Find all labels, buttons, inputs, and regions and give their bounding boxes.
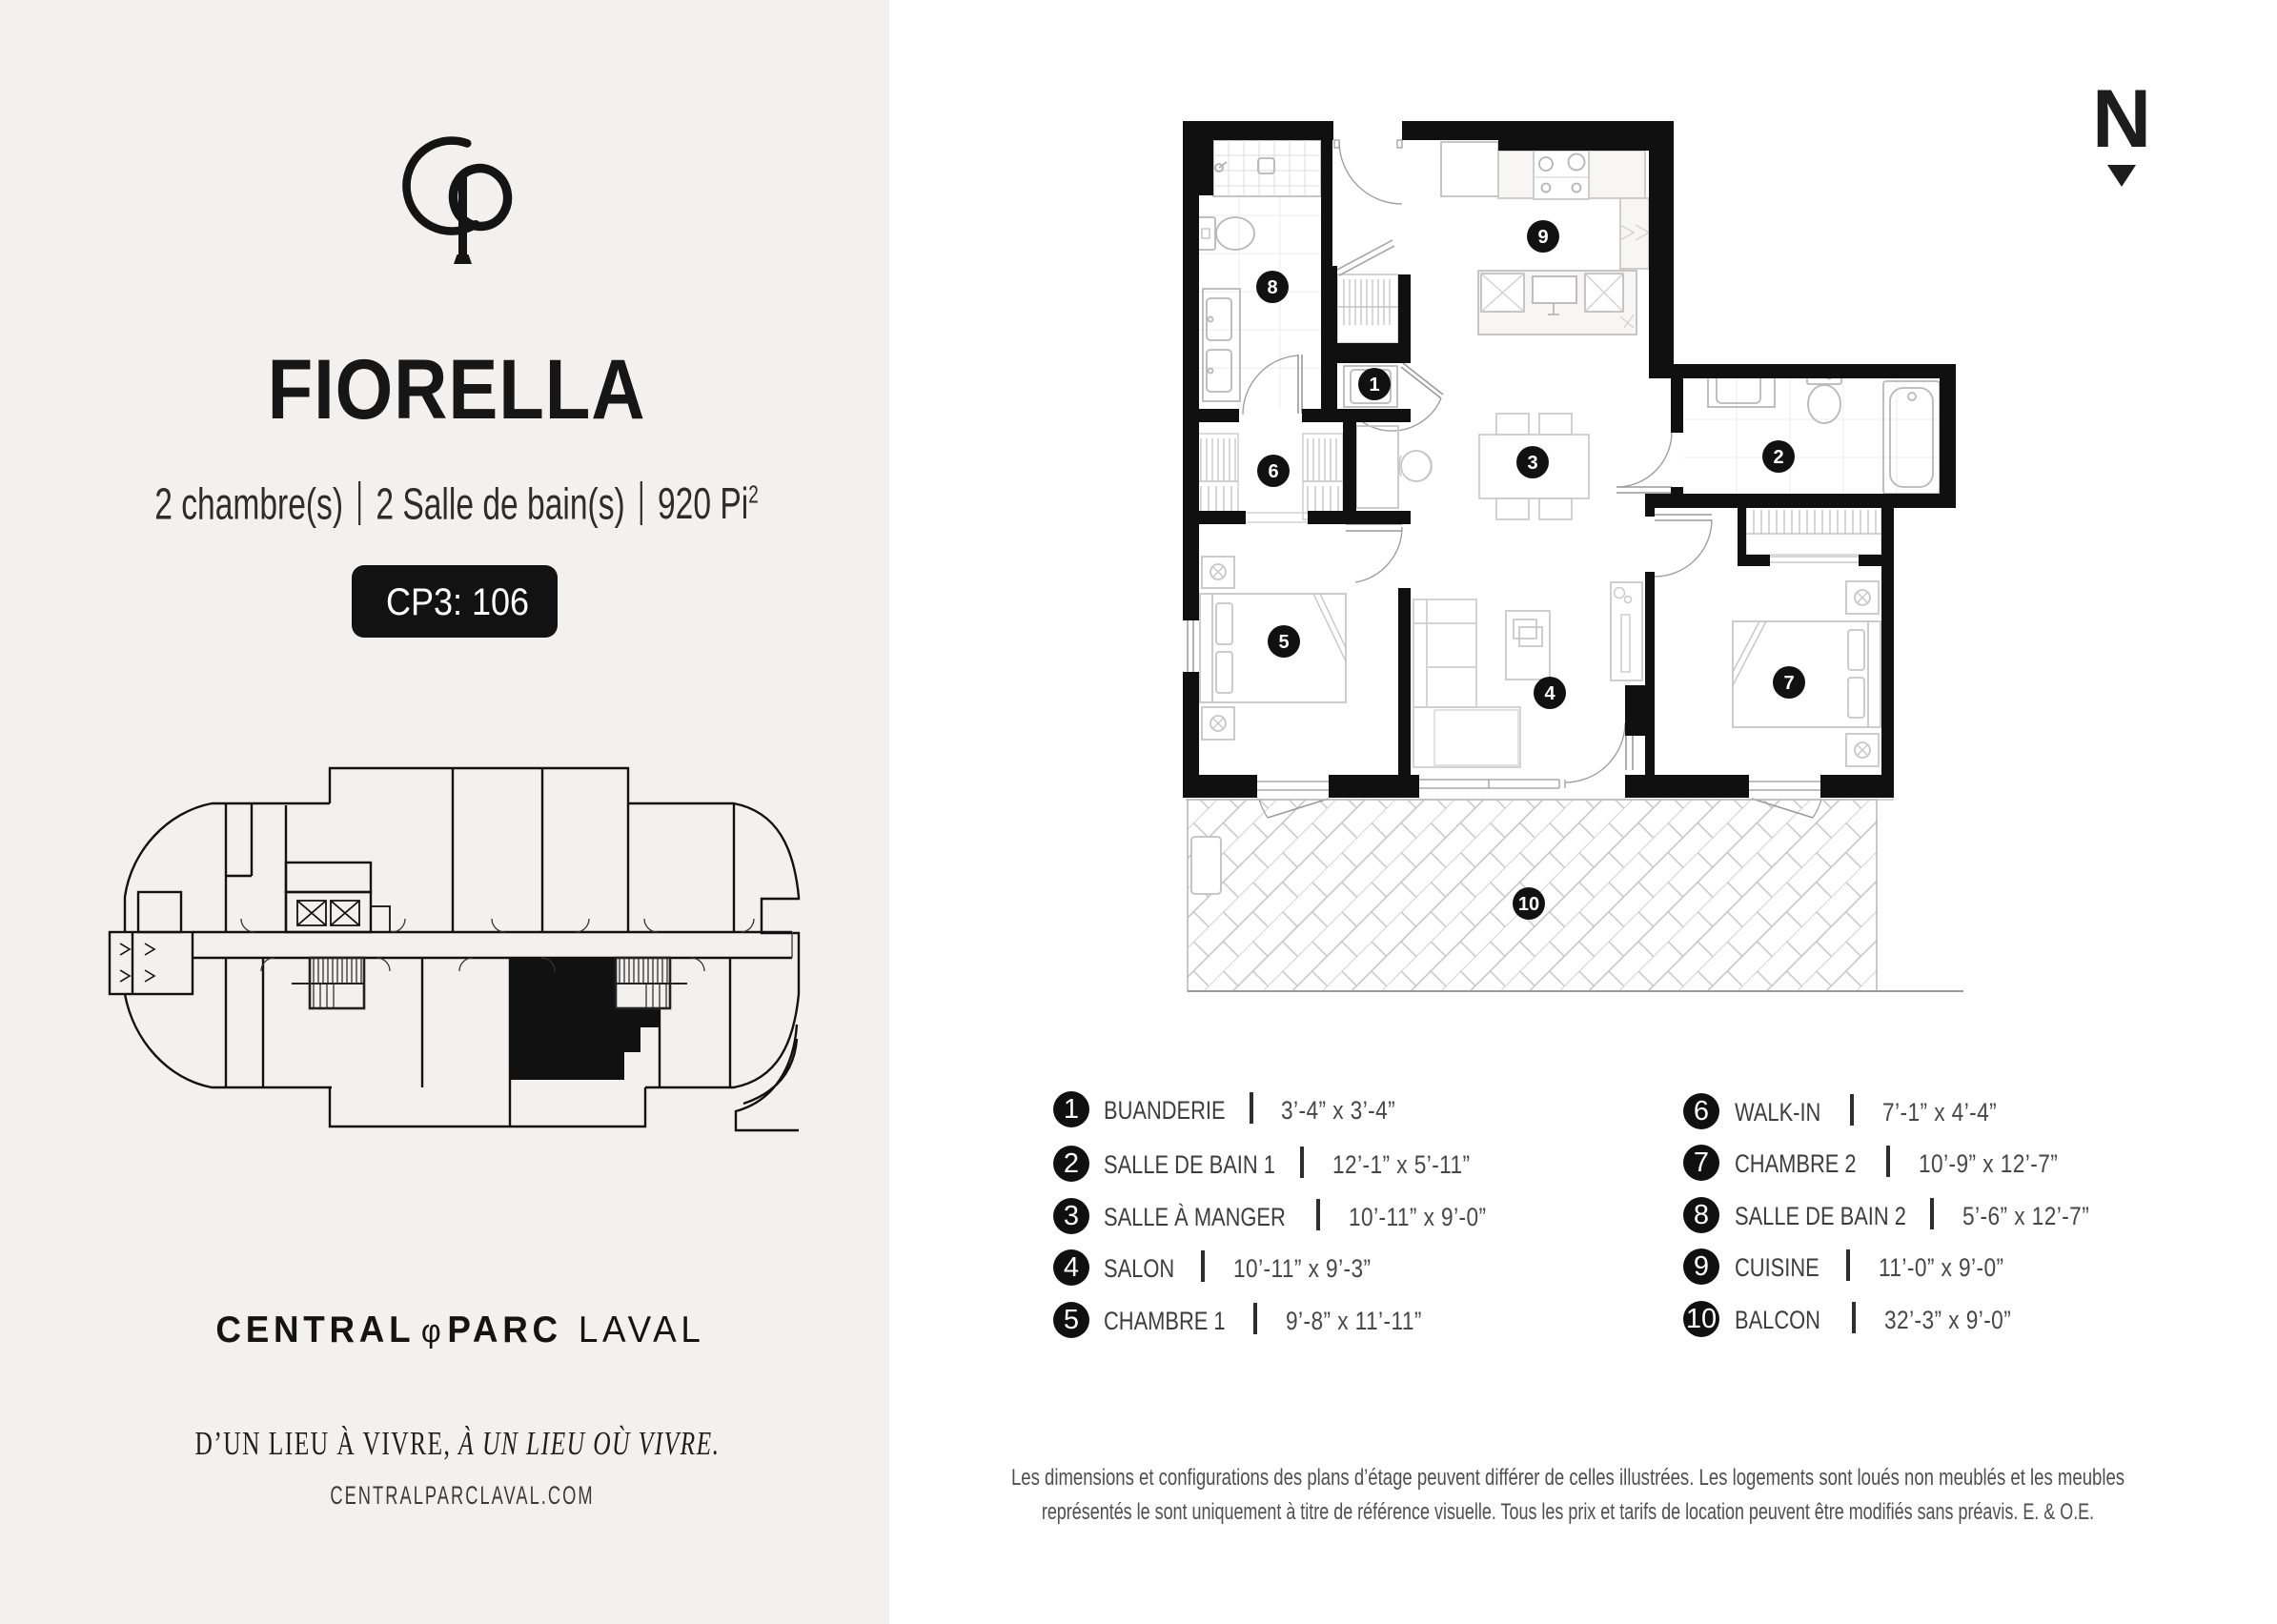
svg-text:8: 8: [1267, 277, 1277, 298]
svg-text:9: 9: [1537, 227, 1548, 248]
svg-text:4: 4: [1544, 683, 1555, 704]
svg-text:2: 2: [1773, 447, 1783, 468]
svg-text:3: 3: [1527, 453, 1537, 474]
svg-text:5: 5: [1278, 632, 1289, 653]
svg-text:10: 10: [1518, 894, 1539, 915]
svg-text:1: 1: [1369, 375, 1379, 396]
svg-text:6: 6: [1268, 461, 1278, 482]
svg-text:7: 7: [1783, 673, 1794, 694]
